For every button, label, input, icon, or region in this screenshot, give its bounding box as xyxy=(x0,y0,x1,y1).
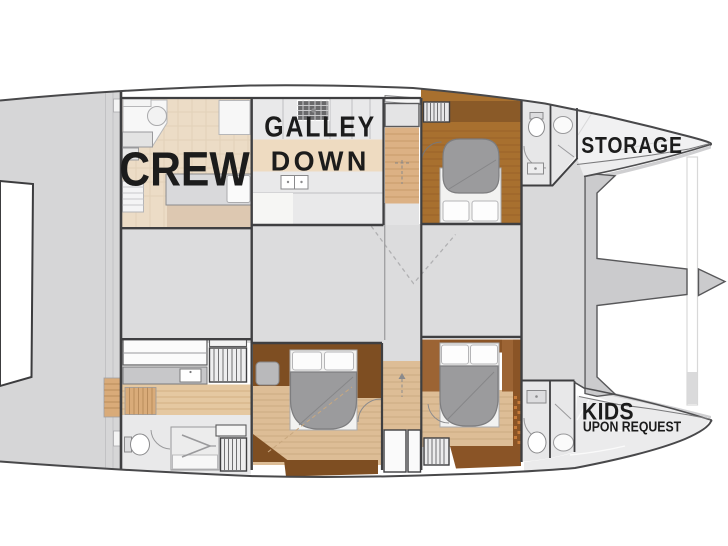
svg-text:GALLEY: GALLEY xyxy=(264,111,376,143)
svg-text:CREW: CREW xyxy=(119,142,250,196)
svg-text:STORAGE: STORAGE xyxy=(581,132,683,158)
svg-text:DOWN: DOWN xyxy=(271,145,370,176)
svg-text:UPON REQUEST: UPON REQUEST xyxy=(583,418,682,434)
